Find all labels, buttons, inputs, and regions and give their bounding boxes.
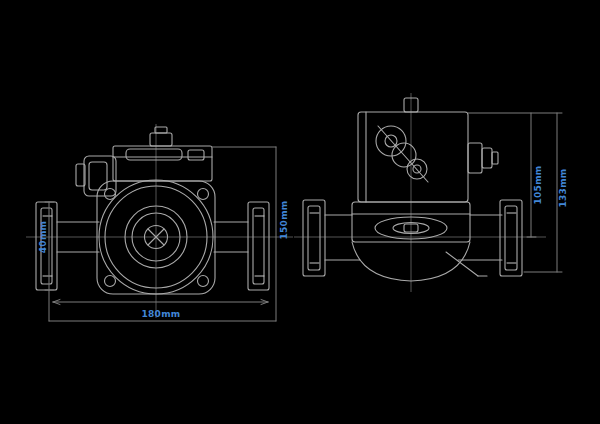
front-dimension-lines (45, 147, 276, 321)
side-volute (352, 242, 487, 281)
side-dimension-lines (468, 113, 562, 272)
front-terminal-box (113, 127, 212, 181)
pump-technical-drawing (0, 0, 600, 424)
side-view-drawing (294, 93, 562, 292)
dim-label-side-overall-height: 133mm (559, 168, 568, 207)
dim-label-front-port-to-port: 180mm (141, 310, 180, 319)
side-flange-left (303, 200, 325, 276)
front-side-plug (76, 156, 116, 196)
side-box-internals (376, 126, 428, 182)
dim-label-front-overall-height: 150mm (280, 200, 289, 239)
side-centerlines (294, 93, 546, 292)
side-flange-right (500, 200, 522, 276)
dim-label-side-top-to-axis: 105mm (534, 165, 543, 204)
front-view-drawing (26, 124, 293, 321)
side-cable-gland (468, 143, 498, 173)
side-terminal-box (358, 98, 468, 202)
front-flange-right (248, 202, 269, 290)
dim-label-front-flange-height: 40mm (39, 221, 48, 253)
drawing-canvas: 40mm 150mm 180mm 105mm 133mm (0, 0, 600, 424)
